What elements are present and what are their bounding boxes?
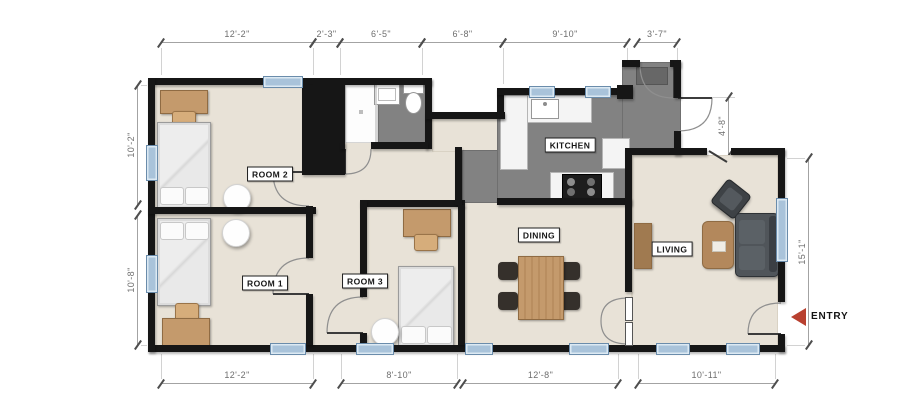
dimension-text: 12'-2" (224, 370, 249, 380)
room-label-dining: DINING (518, 228, 560, 243)
vestibule-mat (636, 67, 668, 85)
dimension-top-2: 2'-3" (313, 42, 340, 43)
extension-line (313, 354, 314, 379)
dimension-text: 12'-8" (528, 370, 553, 380)
window (146, 145, 158, 181)
window (263, 76, 303, 88)
dining-chair (498, 262, 518, 280)
accent-chair-seat (718, 186, 743, 211)
extension-line (677, 48, 678, 60)
sofa-cushion (739, 220, 765, 244)
dining-chair (498, 292, 518, 310)
dimension-text: 10'-11" (691, 370, 721, 380)
extension-line (161, 48, 162, 75)
sofa (735, 213, 779, 277)
wall-room3-top (360, 200, 465, 207)
room-label-room1: ROOM 1 (242, 276, 288, 291)
dimension-left-1: 10'-2" (137, 85, 138, 205)
window-living-right (776, 198, 788, 262)
extension-line (141, 85, 147, 86)
dimension-top-4: 6'-8" (422, 42, 503, 43)
french-door-leaf (625, 297, 633, 321)
window (465, 343, 493, 355)
dimension-left-2: 10'-8" (137, 215, 138, 345)
dimension-text: 6'-8" (453, 29, 473, 39)
extension-line (787, 345, 805, 346)
room-label-living: LIVING (652, 242, 693, 257)
extension-line (775, 354, 776, 379)
dimension-top-5: 9'-10" (503, 42, 627, 43)
window (726, 343, 760, 355)
extension-line (313, 48, 314, 75)
room-label-room2: ROOM 2 (247, 167, 293, 182)
window (146, 255, 158, 293)
pouf (222, 219, 250, 247)
bed-pillow (185, 187, 209, 205)
extension-line (141, 345, 147, 346)
desk (403, 209, 451, 237)
bed-pillow (160, 222, 184, 240)
sofa-cushion (739, 246, 765, 270)
extension-line (627, 48, 628, 60)
extension-line (638, 354, 639, 379)
wall-vestibule-top (622, 60, 640, 67)
extension-line (340, 48, 341, 75)
stove-cooktop (562, 174, 602, 201)
dimension-top-3: 6'-5" (340, 42, 422, 43)
french-door-leaf (625, 322, 633, 346)
wall-room-divider (148, 207, 316, 214)
coffee-table-book (712, 241, 726, 252)
dimension-text: 15'-1" (797, 239, 807, 264)
extension-line (422, 48, 423, 75)
sink-basin (378, 88, 396, 101)
wall-dining-living (625, 155, 632, 292)
bed-pillow (185, 222, 209, 240)
bed-pillow (160, 187, 184, 205)
wall-corridor-left (455, 147, 462, 205)
kitchen-sink (531, 99, 559, 119)
wall-bath-bottom (340, 142, 345, 149)
console-table (634, 223, 652, 269)
wall-bath-bottom (371, 142, 428, 149)
window (270, 343, 306, 355)
dining-table (518, 256, 564, 320)
wall-living-top (625, 148, 707, 155)
bathroom-sink (374, 84, 400, 105)
wall-hallway (306, 294, 313, 345)
extension-line (503, 48, 504, 84)
dimension-right-porch: 4'-8" (728, 97, 729, 155)
burner (567, 178, 575, 186)
faucet (543, 102, 547, 106)
dimension-text: 4'-8" (717, 116, 727, 136)
dimension-text: 6'-5" (371, 29, 391, 39)
wall-core-block (302, 85, 345, 175)
bed (157, 122, 211, 209)
desk (162, 318, 210, 346)
burner (567, 188, 575, 196)
wall-kitchen-dining (497, 198, 632, 205)
desk-chair (414, 234, 438, 251)
kitchen-corridor-floor (462, 150, 498, 203)
wall-hallway (306, 206, 313, 258)
wall-vestibule-stub (617, 85, 633, 99)
dimension-text: 3'-7" (647, 29, 667, 39)
window (569, 343, 609, 355)
floor-plan: 12'-2" 2'-3" 6'-5" 6'-8" 9'-10" 3'-7" 12… (0, 0, 905, 411)
dimension-top-1: 12'-2" (161, 42, 313, 43)
dimension-text: 12'-2" (224, 29, 249, 39)
extension-line (341, 354, 342, 379)
entry-label: ENTRY (811, 311, 849, 322)
wall-notch-bottom (425, 112, 505, 119)
window (585, 86, 611, 98)
burner (587, 178, 595, 186)
dimension-top-6: 3'-7" (637, 42, 677, 43)
extension-line (457, 354, 458, 379)
dimension-text: 10'-8" (126, 267, 136, 292)
dimension-bottom-3: 12'-8" (463, 383, 618, 384)
burner (587, 188, 595, 196)
extension-line (618, 354, 619, 379)
dimension-text: 9'-10" (552, 29, 577, 39)
exterior-notch (432, 62, 497, 114)
bed-pillow (401, 326, 426, 344)
coffee-table (702, 221, 734, 269)
dimension-bottom-1: 12'-2" (161, 383, 313, 384)
kitchen-counter-left (500, 95, 528, 170)
dimension-text: 8'-10" (386, 370, 411, 380)
window (656, 343, 690, 355)
wall-kitchen-top (497, 88, 632, 95)
dimension-bottom-4: 10'-11" (638, 383, 775, 384)
window (356, 343, 394, 355)
bed (398, 266, 454, 347)
room-label-room3: ROOM 3 (342, 274, 388, 289)
bed-pillow (427, 326, 452, 344)
bed (157, 218, 211, 306)
room-label-kitchen: KITCHEN (545, 138, 596, 153)
wall-dining-left (458, 205, 465, 345)
wall-living-top (731, 148, 785, 155)
dimension-text: 10'-2" (126, 132, 136, 157)
wall-left (148, 78, 155, 352)
dimension-right-living: 15'-1" (808, 158, 809, 345)
entry-arrow-icon (791, 308, 806, 326)
extension-line (161, 354, 162, 379)
pouf (371, 318, 399, 346)
dimension-text: 2'-3" (317, 29, 337, 39)
extension-line (787, 158, 805, 159)
window (529, 86, 555, 98)
toilet-bowl (405, 92, 422, 114)
dimension-bottom-2: 8'-10" (341, 383, 457, 384)
wall-vestibule-right (674, 60, 681, 98)
shower-drain (359, 110, 363, 114)
